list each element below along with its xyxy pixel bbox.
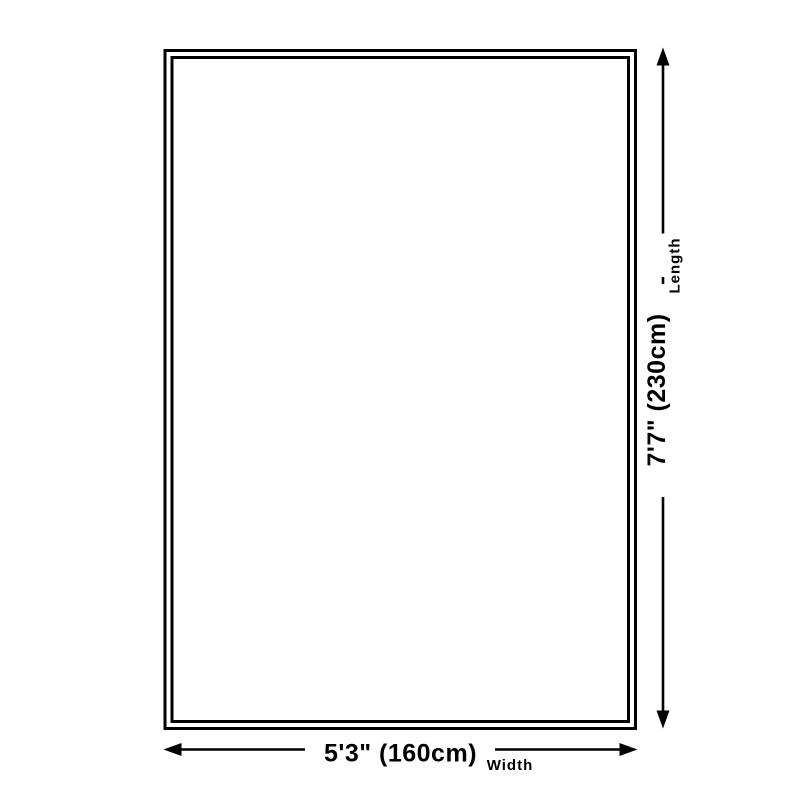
diagram-background <box>0 0 800 800</box>
length-value-label: 7'7" (230cm) <box>643 313 671 466</box>
dimension-diagram: Length 7'7" (230cm) 5'3" (160cm) Width <box>0 0 800 800</box>
width-value-label: 5'3" (160cm) <box>324 740 477 768</box>
length-axis-label: Length <box>667 238 684 294</box>
width-axis-label: Width <box>487 757 534 774</box>
